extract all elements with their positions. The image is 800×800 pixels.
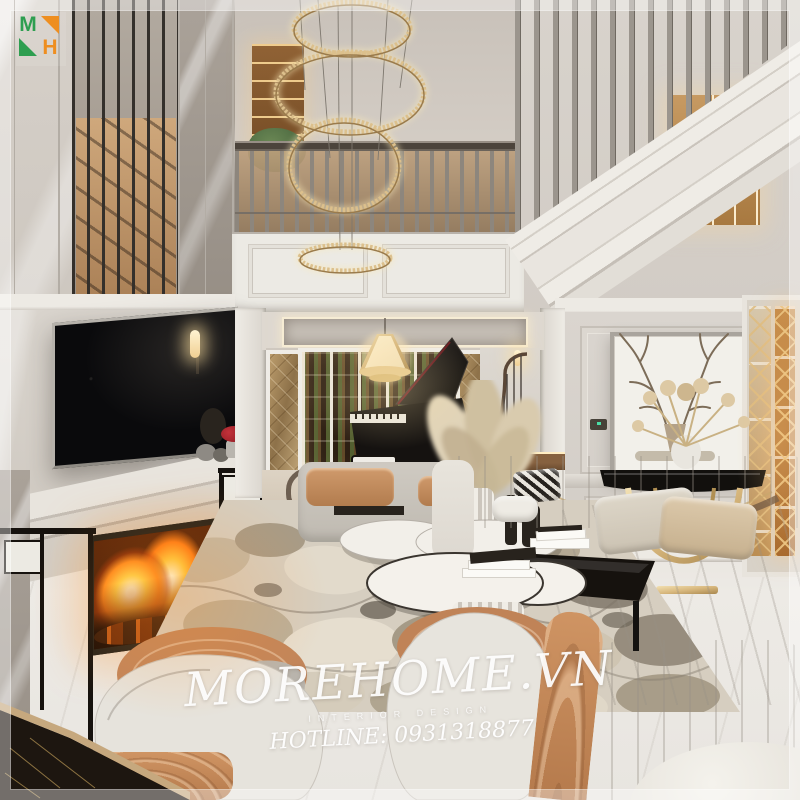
photo-frame-border bbox=[0, 0, 800, 800]
interior-render: MOREHOME.VN INTERIOR DESIGN HOTLINE: 093… bbox=[0, 0, 800, 800]
